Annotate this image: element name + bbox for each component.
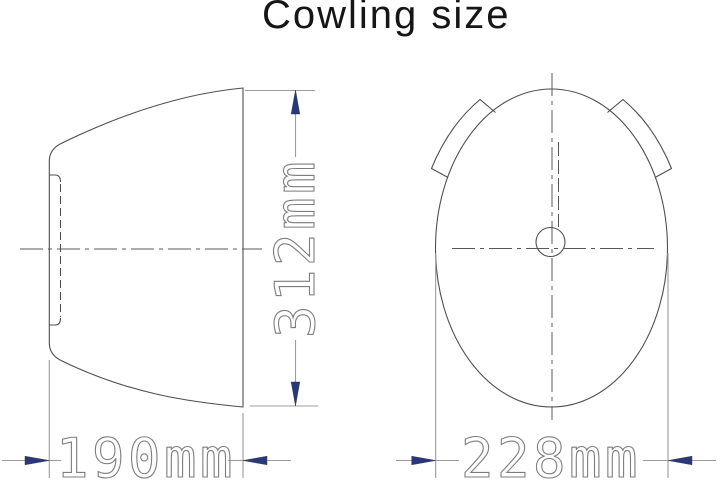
arrow-right-icon [25, 456, 49, 465]
front-view [432, 73, 672, 420]
dimension-height: 312mm [245, 90, 327, 406]
dimension-label-length: 190mm [56, 427, 236, 482]
dimension-width: 228mm [396, 253, 716, 482]
left-cheek-tab [432, 100, 496, 178]
side-view [20, 88, 262, 407]
cowling-drawing: 312mm 190mm 228mm [0, 0, 717, 482]
side-view-outline [49, 88, 243, 407]
inlet-lip-top-edge [49, 175, 60, 182]
inlet-lip-bottom-edge [49, 318, 60, 325]
arrow-right-icon [412, 456, 436, 465]
dimension-label-height: 312mm [264, 158, 327, 338]
right-cheek-tab [608, 100, 672, 178]
arrow-left-icon [243, 456, 267, 465]
dimension-length: 190mm [2, 360, 291, 482]
arrow-down-icon [291, 382, 300, 406]
arrow-left-icon [668, 456, 692, 465]
drawing-canvas: Cowling size 312mm [0, 0, 717, 482]
arrow-up-icon [291, 90, 300, 114]
dimension-label-width: 228mm [461, 427, 641, 482]
spinner-hole [536, 228, 565, 257]
